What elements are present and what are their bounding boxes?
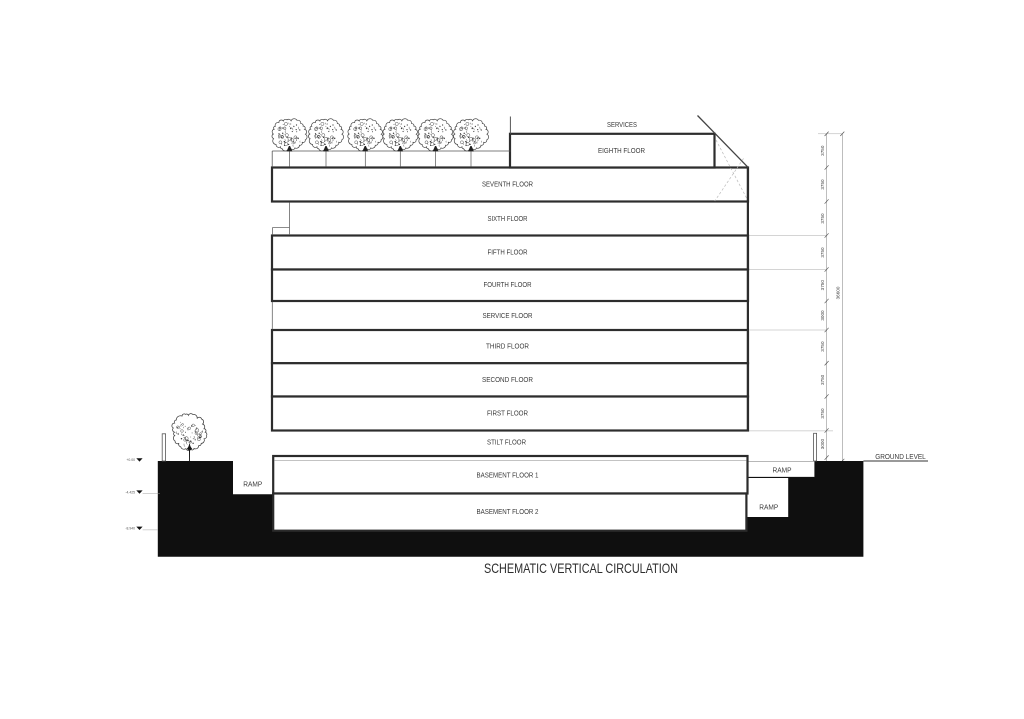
svg-text:FIRST FLOOR: FIRST FLOOR	[487, 408, 528, 417]
svg-text:THIRD FLOOR: THIRD FLOOR	[486, 342, 529, 351]
svg-text:FOURTH FLOOR: FOURTH FLOOR	[484, 280, 532, 289]
svg-text:3000: 3000	[820, 310, 825, 321]
svg-text:SCHEMATIC VERTICAL CIRCULATION: SCHEMATIC VERTICAL CIRCULATION	[484, 560, 678, 576]
svg-text:3750: 3750	[820, 280, 825, 291]
svg-text:FIFTH FLOOR: FIFTH FLOOR	[488, 247, 528, 256]
svg-text:BASEMENT FLOOR 2: BASEMENT FLOOR 2	[477, 507, 539, 516]
svg-text:STILT FLOOR: STILT FLOOR	[487, 437, 526, 446]
svg-text:SERVICES: SERVICES	[607, 120, 637, 129]
svg-text:EIGHTH FLOOR: EIGHTH FLOOR	[598, 146, 645, 155]
svg-text:SECOND FLOOR: SECOND FLOOR	[482, 375, 533, 384]
svg-text:3750: 3750	[820, 408, 825, 419]
svg-text:SEVENTH FLOOR: SEVENTH FLOOR	[482, 179, 533, 188]
svg-text:-8.940: -8.940	[125, 527, 135, 531]
svg-text:3750: 3750	[820, 374, 825, 385]
svg-text:GROUND LEVEL: GROUND LEVEL	[875, 452, 926, 461]
svg-text:36600: 36600	[836, 286, 841, 299]
svg-text:SERVICE FLOOR: SERVICE FLOOR	[483, 311, 533, 320]
svg-text:3750: 3750	[820, 213, 825, 224]
svg-text:SIXTH FLOOR: SIXTH FLOOR	[488, 214, 528, 223]
svg-text:3750: 3750	[820, 179, 825, 190]
svg-text:-4.425: -4.425	[125, 490, 135, 494]
svg-text:3750: 3750	[820, 341, 825, 352]
svg-text:3000: 3000	[820, 439, 825, 450]
svg-text:3750: 3750	[820, 145, 825, 156]
svg-text:+0.00: +0.00	[126, 458, 135, 462]
svg-text:BASEMENT FLOOR 1: BASEMENT FLOOR 1	[477, 471, 539, 480]
svg-text:RAMP: RAMP	[773, 467, 792, 474]
svg-text:3750: 3750	[820, 247, 825, 258]
svg-text:RAMP: RAMP	[243, 481, 262, 488]
svg-text:RAMP: RAMP	[759, 504, 778, 511]
